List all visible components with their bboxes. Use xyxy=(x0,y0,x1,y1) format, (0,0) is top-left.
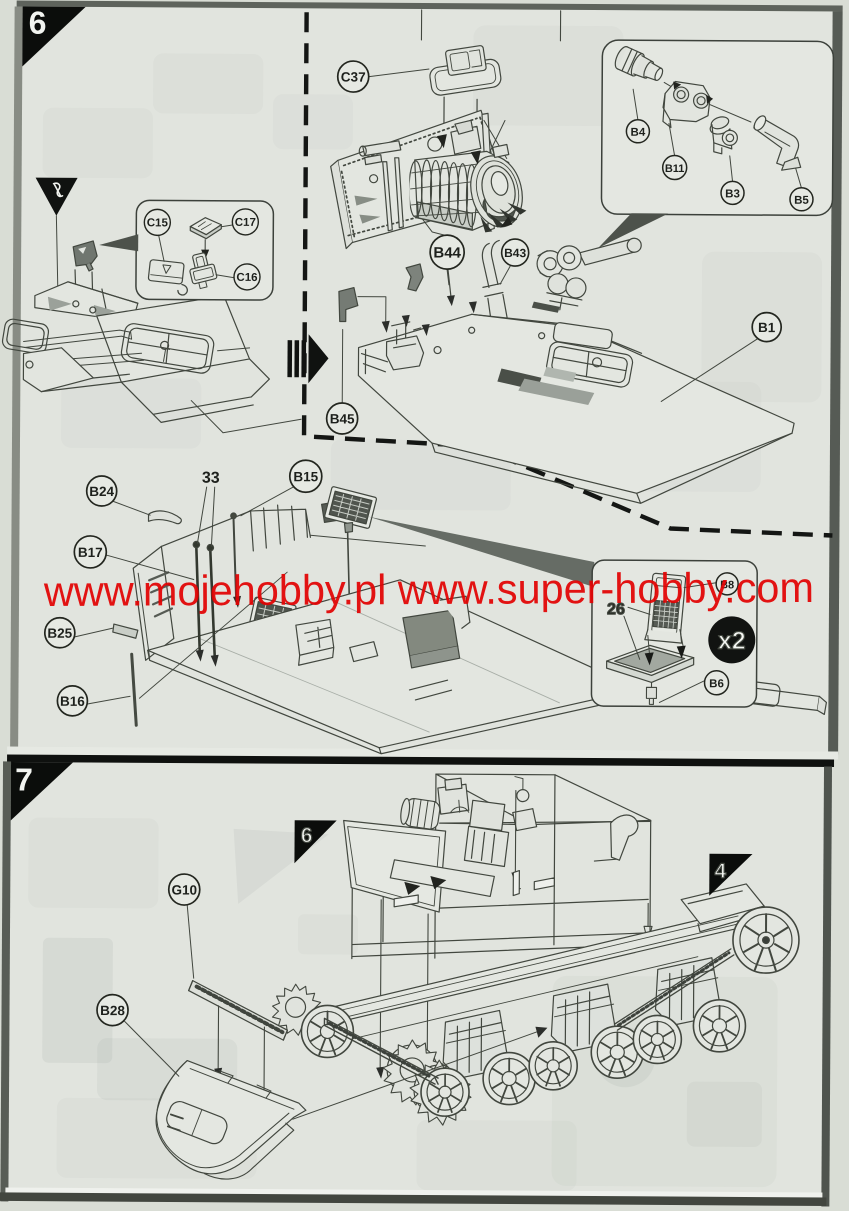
svg-text:B24: B24 xyxy=(89,484,114,499)
svg-text:B4: B4 xyxy=(631,127,646,139)
svg-text:C37: C37 xyxy=(341,69,366,84)
svg-text:7: 7 xyxy=(15,762,33,798)
svg-text:B43: B43 xyxy=(504,246,526,260)
svg-text:B11: B11 xyxy=(665,163,685,175)
svg-text:B25: B25 xyxy=(47,626,72,641)
svg-text:B15: B15 xyxy=(293,469,318,484)
svg-text:www.mojehobby.pl www.super-hob: www.mojehobby.pl www.super-hobby.com xyxy=(43,565,814,616)
svg-text:G10: G10 xyxy=(171,882,197,897)
svg-text:B28: B28 xyxy=(100,1003,125,1018)
svg-text:4: 4 xyxy=(714,860,726,883)
svg-text:B5: B5 xyxy=(794,195,809,207)
svg-text:C17: C17 xyxy=(235,217,256,229)
svg-text:B17: B17 xyxy=(78,545,103,560)
svg-text:C16: C16 xyxy=(236,272,257,284)
svg-text:C15: C15 xyxy=(147,217,169,229)
svg-text:B1: B1 xyxy=(758,320,776,335)
svg-text:B6: B6 xyxy=(709,678,724,690)
svg-text:B45: B45 xyxy=(330,411,355,426)
svg-text:B3: B3 xyxy=(725,188,740,200)
svg-text:33: 33 xyxy=(202,470,220,487)
svg-text:x2: x2 xyxy=(718,627,746,655)
svg-text:6: 6 xyxy=(29,5,47,41)
svg-text:B44: B44 xyxy=(433,245,461,262)
svg-text:6: 6 xyxy=(301,824,313,847)
svg-text:B16: B16 xyxy=(60,694,85,709)
